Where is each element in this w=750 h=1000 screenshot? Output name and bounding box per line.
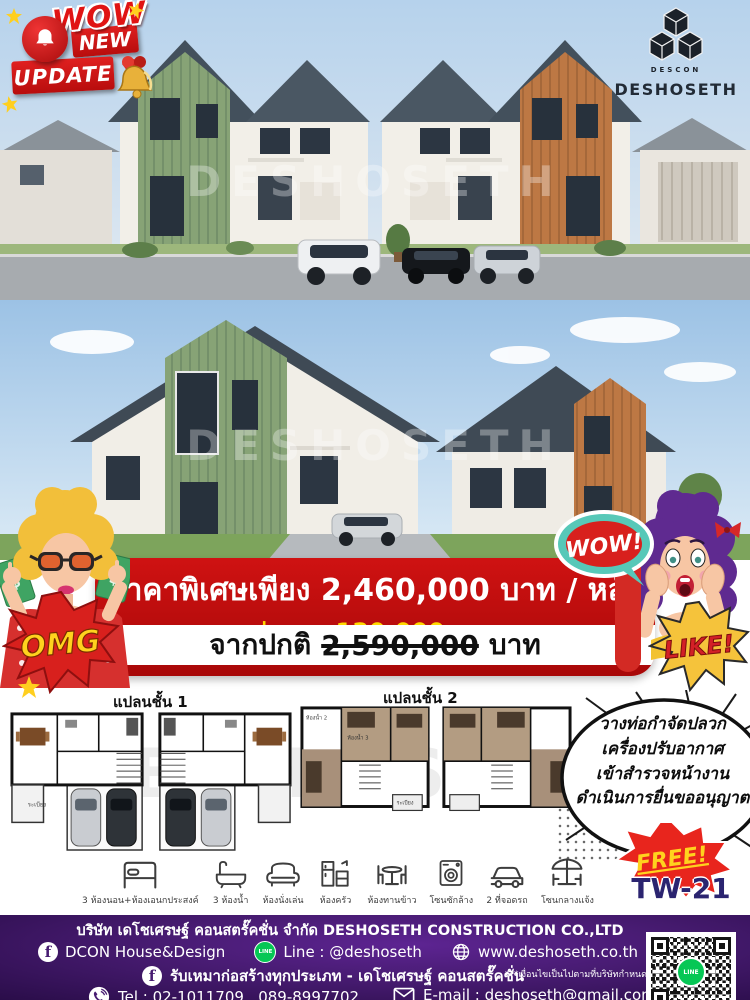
original-price-prefix: จากปกติ: [209, 623, 311, 667]
floorplan-level1: ระเบียง: [8, 704, 294, 854]
washer-icon: [433, 856, 469, 890]
poster: DESHOSETH: [0, 0, 750, 1000]
bathtub-icon: [212, 856, 250, 890]
amenities-row: 3 ห้องนอน+ห้องเอนกประสงค์ 3 ห้องน้ำ ห้อง…: [82, 856, 594, 907]
plan2-room-label: ระเบียง: [397, 800, 414, 807]
phone-icon: [88, 986, 110, 1000]
watermark-middle: DESHOSETH: [186, 421, 563, 470]
service-line: ดำเนินการยื่นขออนุญาต: [570, 786, 750, 811]
line-qr-code[interactable]: LINE: [646, 932, 736, 1000]
footer-contacts-row: f DCON House&Design LINE Line : @deshose…: [38, 941, 638, 963]
armchair-icon: [264, 856, 302, 890]
car-icon: [486, 856, 528, 890]
plan2-room-label: ห้องน้ำ 3: [347, 733, 368, 741]
wow-speech-bubble: WOW!: [552, 508, 660, 586]
facebook2-text: รับเหมาก่อสร้างทุกประเภท - เดโชเศรษฐ์ คอ…: [170, 964, 524, 988]
line-link[interactable]: LINE Line : @deshoseth: [254, 941, 422, 963]
line-logo-icon: LINE: [676, 957, 706, 987]
logo-small-text: DESCON: [651, 66, 702, 74]
like-burst: LIKE!: [648, 600, 750, 692]
amenity-label: โซนซักล้าง: [429, 893, 473, 907]
update-badge: UPDATE: [11, 56, 115, 94]
kitchen-icon: [316, 856, 354, 890]
open-mouth: [676, 575, 694, 597]
omg-text: OMG: [19, 624, 102, 666]
service-line: เข้าสำรวจหน้างาน: [570, 762, 750, 787]
amenity-label: โซนกลางแจ้ง: [541, 893, 594, 907]
model-code: TW-21: [612, 872, 750, 905]
amenity-bedrooms: 3 ห้องนอน+ห้องเอนกประสงค์: [82, 856, 199, 907]
amenity-parking: 2 ที่จอดรถ: [486, 856, 528, 907]
facebook-icon: f: [38, 942, 58, 962]
amenity-living: ห้องนั่งเล่น: [263, 856, 304, 907]
service-line: เครื่องปรับอากาศ: [570, 737, 750, 762]
brand-logo: DESCON DESHOSETH: [608, 6, 744, 99]
phone-text: Tel : 02-1011709 , 089-8997702: [118, 988, 359, 1000]
bed-icon: [119, 856, 161, 890]
service-line: วางท่อกำจัดปลวก: [570, 712, 750, 737]
dining-icon: [371, 856, 413, 890]
amenity-label: ห้องนั่งเล่น: [263, 893, 304, 907]
amenity-label: ห้องครัว: [320, 893, 352, 907]
email-text: E-mail : deshoseth@gmail.com: [423, 986, 656, 1000]
amenity-label: 3 ห้องนอน+ห้องเอนกประสงค์: [82, 893, 199, 907]
notification-bell-icon: [22, 16, 68, 62]
company-name: บริษัท เดโชเศรษฐ์ คอนสตรั๊คชั่น จำกัด DE…: [0, 919, 700, 942]
watermark-top: DESHOSETH: [186, 157, 563, 206]
plan2-room-label: ห้องน้ำ 2: [306, 714, 327, 722]
line-icon: LINE: [254, 941, 276, 963]
original-price-suffix: บาท: [489, 623, 541, 667]
globe-icon: [451, 942, 471, 962]
amenity-dining: ห้องทานข้าว: [367, 856, 416, 907]
facebook2-link[interactable]: f รับเหมาก่อสร้างทุกประเภท - เดโชเศรษฐ์ …: [142, 964, 524, 988]
website-text: www.deshoseth.co.th: [478, 943, 638, 961]
original-price-strip: จากปกติ 2,590,000 บาท: [95, 625, 655, 665]
email-icon: [393, 987, 415, 1000]
amenity-label: 3 ห้องน้ำ: [213, 893, 249, 907]
floorplan-level2: ห้องน้ำ 2 ห้องน้ำ 3 ระเบียง: [298, 700, 574, 844]
cubes-logo-icon: DESCON: [643, 6, 709, 78]
facebook-icon: f: [142, 966, 162, 986]
line-text: Line : @deshoseth: [283, 943, 422, 961]
amenity-label: ห้องทานข้าว: [367, 893, 416, 907]
logo-text: DESHOSETH: [608, 80, 744, 99]
golden-bell-icon: [104, 50, 166, 112]
disclaimer: ***เงื่อนไขเป็นไปตามที่บริษัทกำหนด: [505, 967, 650, 981]
omg-burst: OMG: [2, 590, 120, 695]
amenity-laundry: โซนซักล้าง: [429, 856, 473, 907]
amenity-label: 2 ที่จอดรถ: [486, 893, 527, 907]
footer: บริษัท เดโชเศรษฐ์ คอนสตรั๊คชั่น จำกัด DE…: [0, 915, 750, 1000]
original-price-struck: 2,590,000: [321, 629, 479, 662]
amenity-outdoor: โซนกลางแจ้ง: [541, 856, 594, 907]
phone-link[interactable]: Tel : 02-1011709 , 089-8997702: [88, 986, 359, 1000]
website-link[interactable]: www.deshoseth.co.th: [451, 942, 638, 962]
free-services-list: วางท่อกำจัดปลวก เครื่องปรับอากาศ เข้าสำร…: [570, 712, 750, 811]
amenity-bathrooms: 3 ห้องน้ำ: [212, 856, 250, 907]
facebook-text: DCON House&Design: [65, 943, 225, 961]
facebook-link[interactable]: f DCON House&Design: [38, 942, 225, 962]
amenity-kitchen: ห้องครัว: [316, 856, 354, 907]
email-link[interactable]: E-mail : deshoseth@gmail.com: [393, 986, 656, 1000]
plan1-room-label: ระเบียง: [28, 801, 47, 809]
